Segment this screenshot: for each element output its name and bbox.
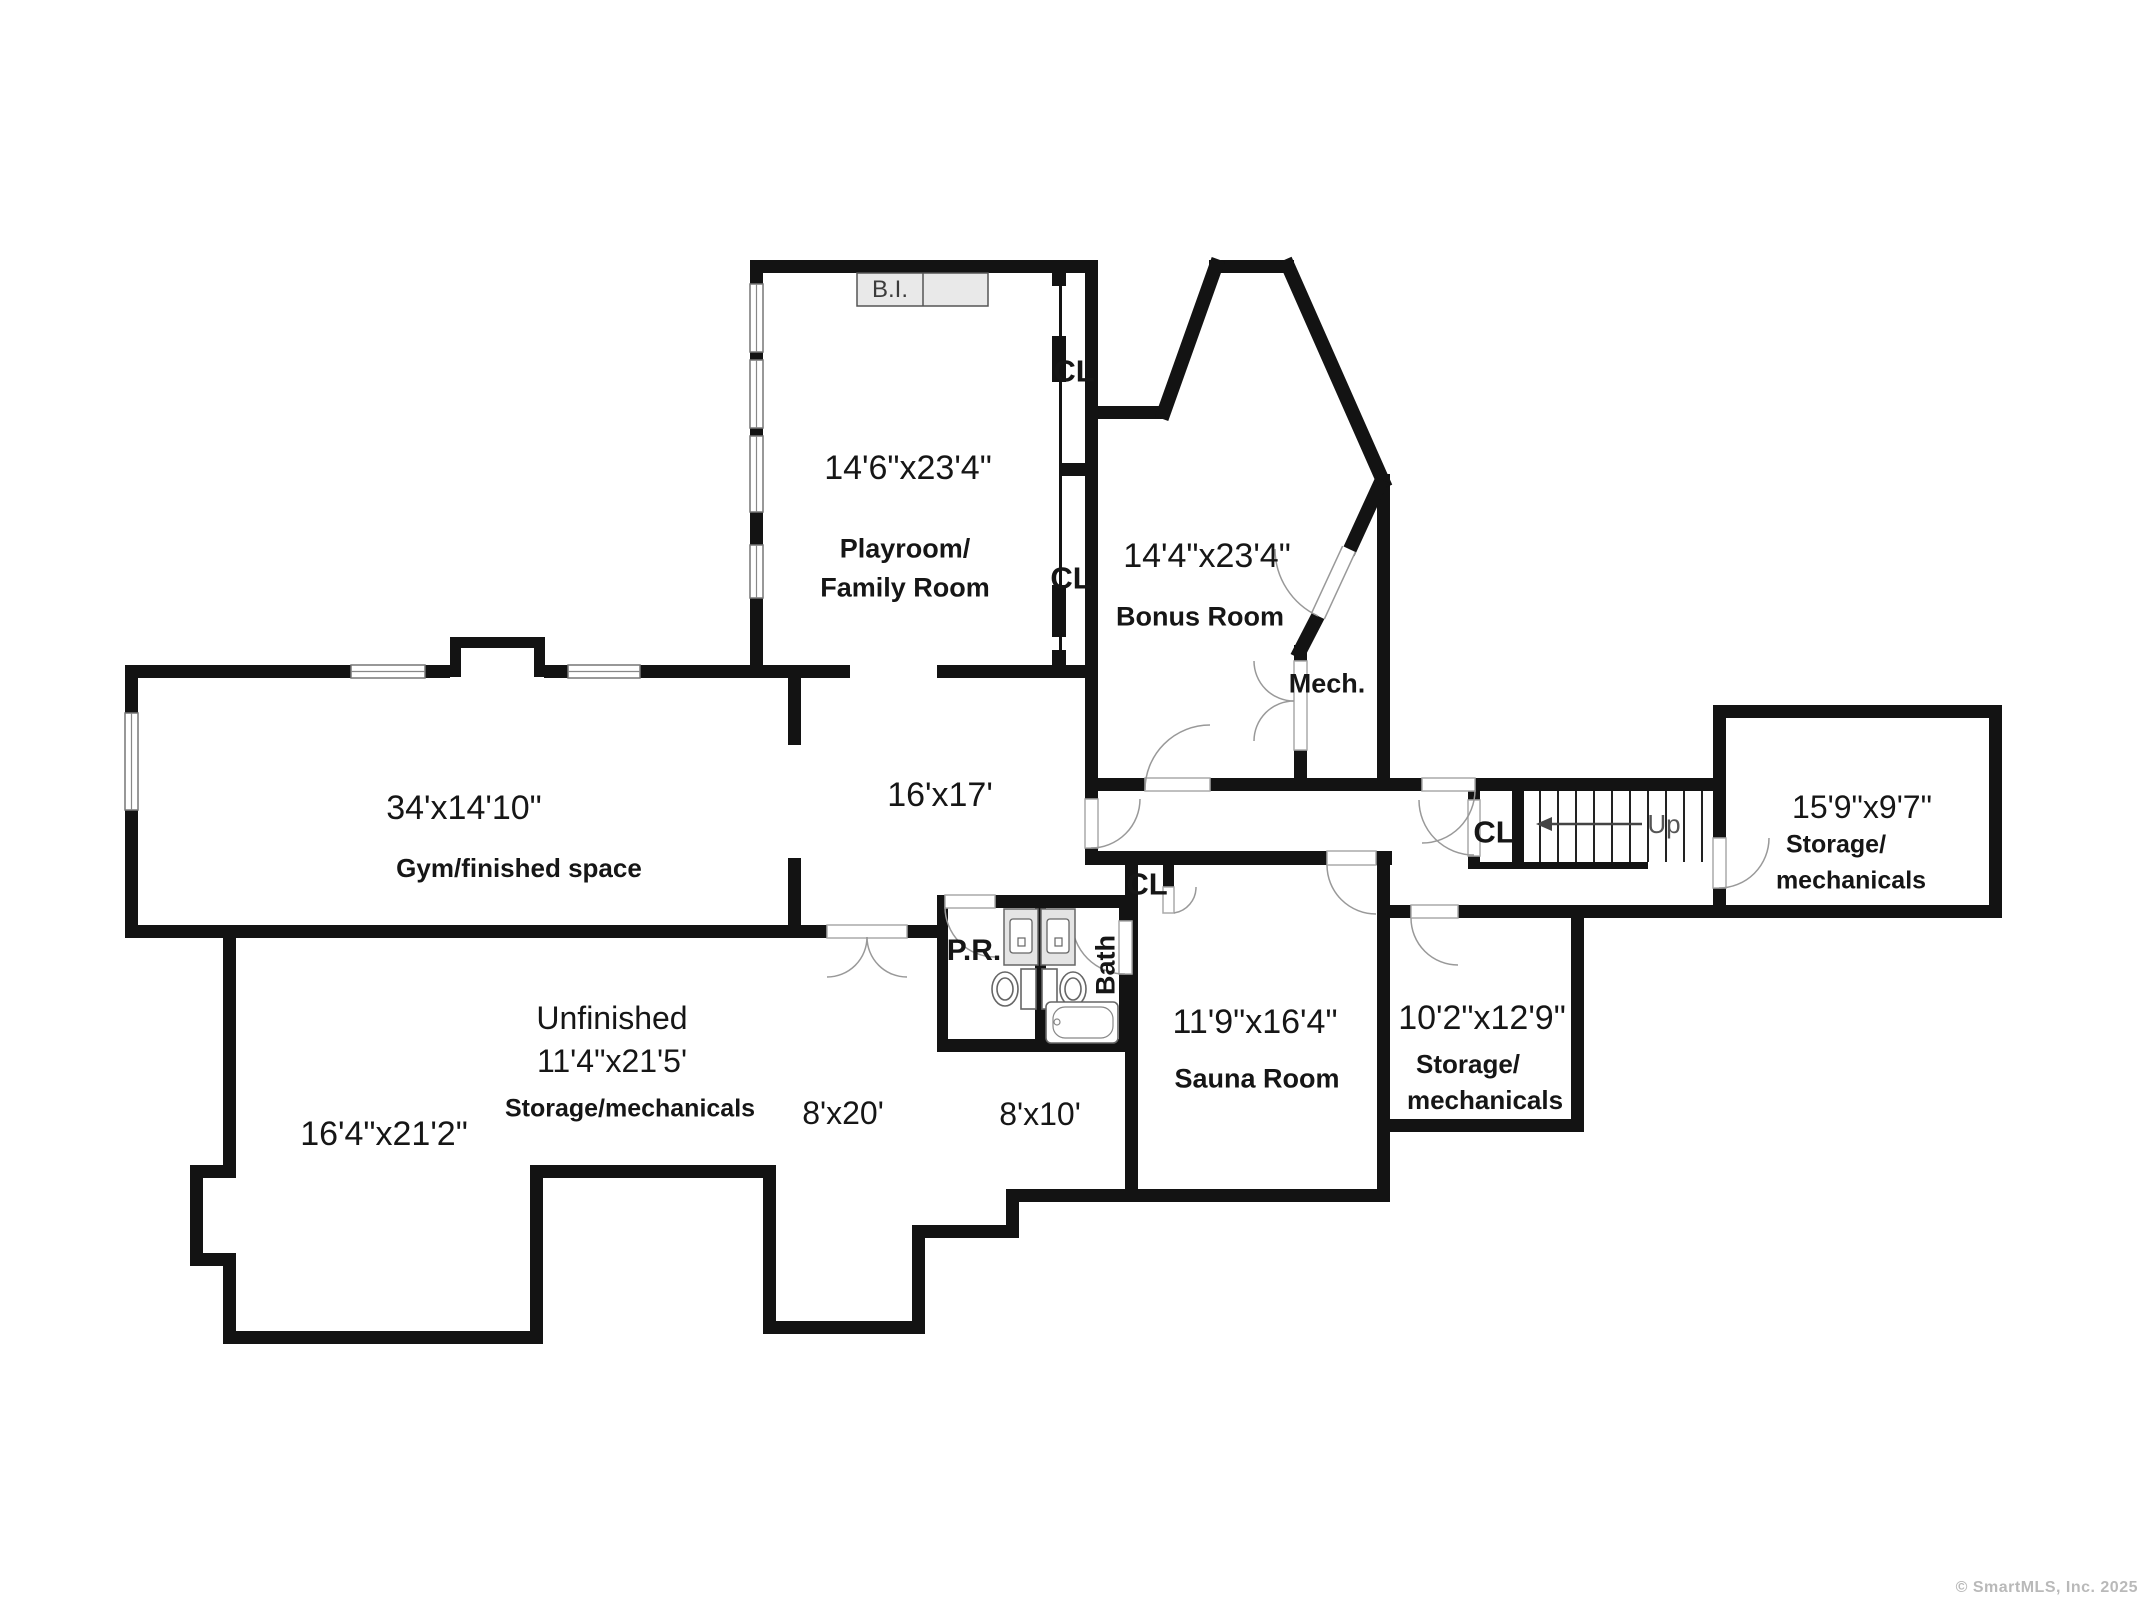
powder-room-label: P.R.	[947, 936, 1001, 966]
toilet-icon	[992, 969, 1036, 1009]
floor-plan-page: 14'6"x23'4" Playroom/ Family Room B.I. C…	[0, 0, 2148, 1603]
sauna-dimensions: 11'9"x16'4"	[1172, 1005, 1337, 1039]
bathtub-icon	[1046, 1002, 1118, 1043]
storage-right-dimensions: 15'9"x9'7"	[1792, 791, 1932, 823]
angled-walls	[1164, 266, 1383, 651]
smartmls-watermark: © SmartMLS, Inc. 2025	[1956, 1579, 2138, 1597]
closet-label-playroom-1: CL	[1053, 356, 1094, 387]
storage-right-name-line1: Storage/	[1786, 833, 1886, 858]
playroom-name-line2: Family Room	[820, 575, 990, 602]
unfinished-label: Unfinished	[536, 1002, 687, 1034]
unfinished-dimensions: 11'4"x21'5'	[537, 1045, 687, 1077]
mech-closet-label: Mech.	[1289, 671, 1366, 698]
storage-mid-dimensions: 10'2"x12'9"	[1398, 1001, 1566, 1035]
storage-right-name-line2: mechanicals	[1776, 869, 1926, 894]
closet-label-stairs: CL	[1473, 817, 1514, 848]
bathroom-label: Bath	[1093, 935, 1120, 995]
area-8x10-dimensions: 8'x10'	[999, 1098, 1081, 1130]
bonus-room-dimensions: 14'4"x23'4"	[1123, 539, 1291, 573]
stairs-up-label: Up	[1647, 811, 1680, 837]
area-8x20-dimensions: 8'x20'	[802, 1097, 884, 1129]
up-arrow-icon	[1536, 817, 1642, 831]
unfinished-storage-name: Storage/mechanicals	[505, 1097, 755, 1122]
vanity-sink-icon	[1041, 909, 1075, 965]
storage-mid-name-line1: Storage/	[1416, 1051, 1520, 1077]
angled-door-leaf	[1318, 549, 1349, 616]
rec-room-dimensions: 16'x17'	[887, 778, 993, 812]
playroom-name-line1: Playroom/	[840, 536, 971, 563]
gym-name: Gym/finished space	[396, 855, 642, 881]
bonus-room-name: Bonus Room	[1116, 604, 1284, 631]
vanity-sink-icon	[1004, 909, 1038, 965]
windows	[125, 284, 763, 810]
gym-dimensions: 34'x14'10"	[386, 791, 542, 825]
built-in-label: B.I.	[872, 278, 908, 302]
playroom-dimensions: 14'6"x23'4"	[824, 451, 992, 485]
closet-label-sauna: CL	[1126, 869, 1167, 900]
unfinished-left-dimensions: 16'4"x21'2"	[300, 1117, 468, 1151]
sauna-name: Sauna Room	[1174, 1066, 1339, 1093]
storage-mid-name-line2: mechanicals	[1407, 1087, 1563, 1113]
closet-label-playroom-2: CL	[1050, 563, 1091, 594]
